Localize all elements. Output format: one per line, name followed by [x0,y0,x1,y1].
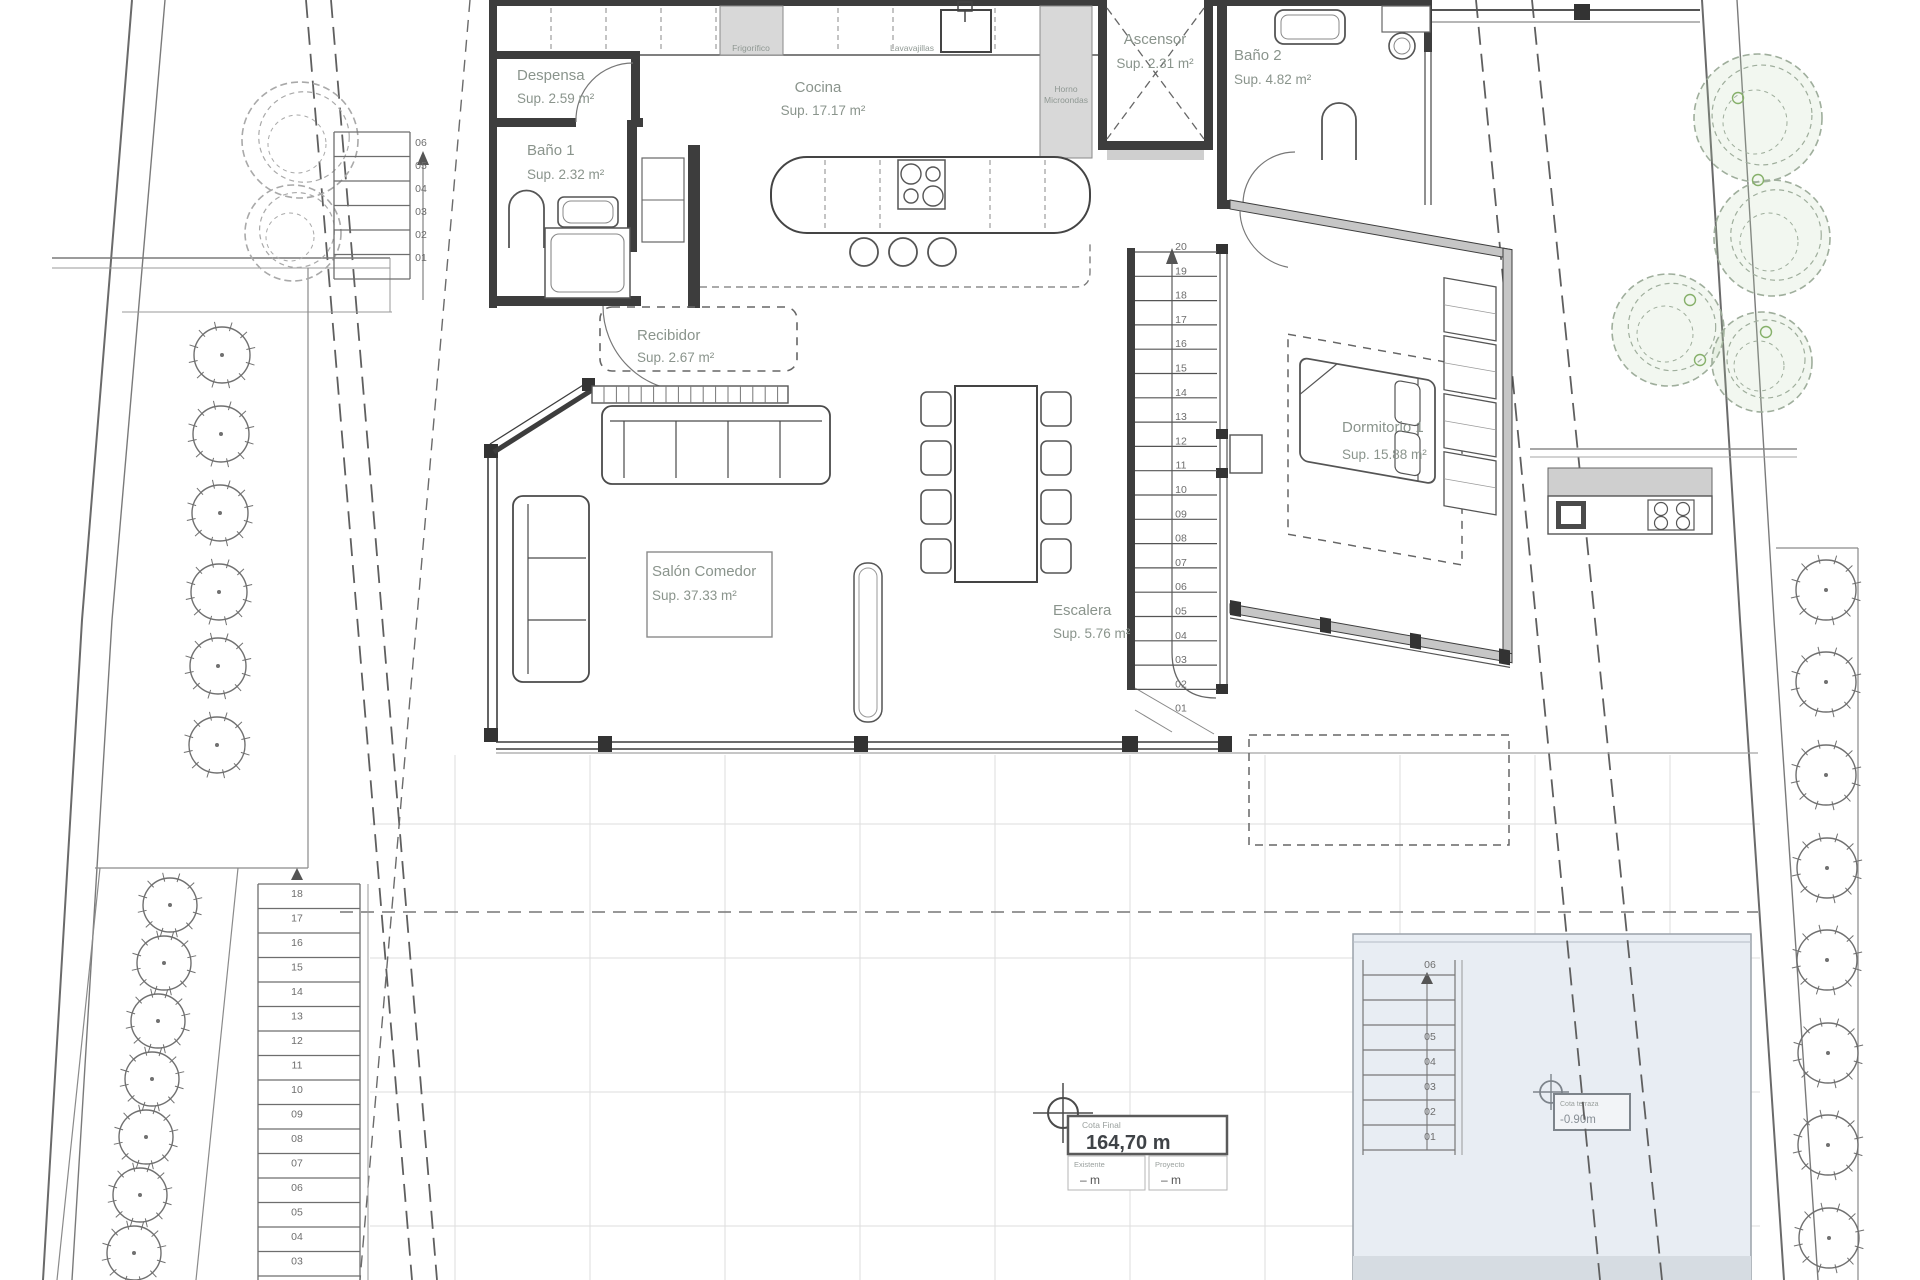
shrub [132,931,196,995]
shrub [138,873,202,937]
stair-number: 09 [1175,508,1187,520]
stair-number: 02 [1175,678,1187,690]
oven-column [1040,6,1092,158]
wall-column [1218,736,1232,752]
tree [1712,312,1812,412]
wall-column [1410,633,1421,650]
wall [1503,248,1512,663]
stair-number: 02 [415,229,427,241]
stair-number: 04 [1424,1056,1436,1068]
dining-table [955,386,1037,582]
stair-number: 01 [415,252,427,264]
stool [850,238,878,266]
stair-number: 10 [291,1084,303,1096]
label-cocina: Cocina [795,79,842,96]
stair-number: 17 [291,913,303,925]
wall [1098,0,1107,150]
chair [1041,490,1071,524]
planter-edge [196,868,238,1280]
main-stair: 2019181716151413121110090807060504030201 [1135,241,1262,734]
label-ascensor-area: Sup. 2.31 m² [1116,56,1194,71]
toilet [509,191,544,249]
tree [1714,180,1830,296]
outdoor-kitchen [1548,468,1712,534]
stair-number: 17 [1175,314,1187,326]
stair-number: 18 [291,888,303,900]
label-recibidor: Recibidor [637,327,700,344]
sofa [602,406,830,484]
stair-number: 14 [291,986,303,998]
wall [1548,468,1712,496]
shrub [114,1105,178,1169]
pool-far-edge [1353,1256,1751,1280]
wall [1230,604,1512,663]
bathroom-sink [1389,33,1415,59]
label-escalera: Escalera [1053,602,1112,619]
hob [898,160,945,209]
stair-number: 16 [1175,338,1187,350]
pool [1353,934,1751,1280]
stair-number: 07 [291,1158,303,1170]
wall [688,145,700,308]
door-swing-arc [1240,211,1288,267]
stair-number: 06 [1175,581,1187,593]
shrub [1791,647,1861,717]
stair-number: 05 [1424,1031,1436,1043]
stair-number: 02 [1424,1106,1436,1118]
wall [631,51,640,127]
level-main-title: Cota Final [1082,1120,1121,1130]
level-left-label: Existente [1074,1160,1105,1169]
stair-number: 05 [1175,606,1187,618]
label-bano2-area: Sup. 4.82 m² [1234,72,1312,87]
window-glazing [1230,618,1510,667]
label-ascensor: Ascensor [1124,31,1187,48]
shrub [108,1163,172,1227]
stool [928,238,956,266]
vanity [1382,6,1430,32]
stair-number: 04 [291,1231,303,1243]
kitchen-sink [941,10,991,52]
setback-line [306,0,412,1280]
stair-number: 16 [291,937,303,949]
wall [1213,0,1432,6]
shrub [1792,925,1862,995]
stair-number: 01 [1175,703,1187,715]
stair-number: 05 [415,160,427,172]
wall [489,118,576,127]
stair-number: 04 [415,183,427,195]
stair-number: 19 [1175,265,1187,277]
chair [921,539,951,573]
wall [489,0,1100,6]
stair-number: 09 [291,1109,303,1121]
shrub [186,559,252,625]
pool-area: 060504030201 Cota terraza -0.90m [1353,934,1751,1280]
shrub [189,322,255,388]
elevator-cross [1107,8,1204,139]
label-bano1-area: Sup. 2.32 m² [527,167,605,182]
wall [489,0,497,308]
tree [1694,54,1822,182]
stair-number: 13 [291,1011,303,1023]
wall [1204,0,1213,150]
stair-landing-box [1230,435,1262,473]
stair-number: 08 [1175,533,1187,545]
oven-label: Horno [1054,84,1077,94]
wall [1217,0,1227,208]
canopy-dashed-outline [1249,735,1509,845]
label-salon-area: Sup. 37.33 m² [652,588,737,603]
stair-number: 12 [291,1035,303,1047]
pool-level-title: Cota terraza [1560,1101,1599,1108]
tree [245,185,341,281]
sideboard [854,563,882,722]
label-salon: Salón Comedor [652,563,756,580]
wall-column [1574,4,1590,20]
shrub [187,480,253,546]
shrub [188,401,254,467]
level-left-value: – m [1080,1173,1100,1187]
label-bano1: Baño 1 [527,142,575,159]
radiator [592,386,788,403]
shrub [1794,1203,1864,1273]
shrub [1791,740,1861,810]
toilet [1322,103,1356,160]
wardrobe [1444,278,1496,515]
fridge-label: Frigorífico [732,43,770,53]
stair-number: 03 [415,206,427,218]
stair-number: 06 [415,137,427,149]
boundary-left-inner [72,0,165,1280]
stair-number: 10 [1175,484,1187,496]
wall [1098,141,1213,150]
stair-number: 15 [291,962,303,974]
label-bano2: Baño 2 [1234,47,1282,64]
stool [889,238,917,266]
wall-column [484,728,498,742]
chair [1041,392,1071,426]
label-dormitorio1-area: Sup. 15.88 m² [1342,447,1427,462]
stair-number: 03 [1175,654,1187,666]
shower [545,228,630,298]
stair-number: 11 [1176,460,1187,472]
stair-number: 03 [291,1256,303,1268]
shrub [1793,1110,1863,1180]
shrub [185,633,251,699]
wall-column [1122,736,1138,752]
chair [921,441,951,475]
wall-column [1320,617,1331,634]
floor-plan-drawing: 060504030201 Cota terraza -0.90m [0,0,1920,1280]
stair-number: 06 [291,1182,303,1194]
shrub [126,989,190,1053]
stair-number: 08 [291,1133,303,1145]
stair-break-line [1135,710,1172,732]
pool-level-value: -0.90m [1560,1114,1596,1126]
level-right-value: – m [1161,1173,1181,1187]
stair-number: 11 [292,1060,303,1072]
stair-number: 14 [1175,387,1187,399]
shrub [102,1221,166,1280]
chair [1041,441,1071,475]
stair-number: 20 [1175,241,1187,253]
label-escalera-area: Sup. 5.76 m² [1053,626,1131,641]
microwave-label: Microondas [1044,95,1088,105]
chair [1041,539,1071,573]
shrub [184,712,250,778]
chair [921,392,951,426]
label-cocina-area: Sup. 17.17 m² [781,103,866,118]
level-right-label: Proyecto [1155,1160,1185,1169]
chair [921,490,951,524]
outdoor-sink-bowl [1561,506,1581,524]
door-swing-arc [1243,152,1295,204]
stair-number: 04 [1175,630,1187,642]
bay-window-wall [494,390,592,452]
label-recibidor-area: Sup. 2.67 m² [637,350,715,365]
label-despensa-area: Sup. 2.59 m² [517,91,595,106]
sofa [513,496,589,682]
stair-number: 13 [1175,411,1187,423]
shrub [1792,833,1862,903]
stair-number: 15 [1175,363,1187,375]
exterior-left-stair: 18171615141312111009080706050403 [258,868,368,1280]
wall-column [854,736,868,752]
level-main-value: 164,70 m [1086,1132,1171,1154]
stair-number: 07 [1175,557,1187,569]
stair-number: 01 [1424,1131,1436,1143]
boundary-left-outer [43,0,132,1280]
wall-column [1230,600,1241,617]
door-swing-arc [603,306,688,391]
wall-column [598,736,612,752]
stair-number: 05 [291,1207,303,1219]
stair-number: 03 [1424,1081,1436,1093]
shrub [1791,555,1861,625]
bay-window-glazing [490,382,588,444]
label-dormitorio1: Dormitorio 1 [1342,419,1424,436]
wall [1230,200,1512,259]
elevator-door-sill [1107,150,1204,160]
tree [1612,274,1724,386]
wall [496,51,640,59]
wall [1127,248,1135,690]
stair-number: 12 [1175,435,1187,447]
stair-number: 18 [1175,290,1187,302]
floor-plan-page: 060504030201 Cota terraza -0.90m [0,0,1920,1280]
label-despensa: Despensa [517,67,585,84]
stair-number: 06 [1424,959,1436,971]
dishwasher-label: Lavavajillas [890,43,934,53]
shrub [120,1047,184,1111]
stair-up-arrow-icon [291,868,303,880]
wall-column [1499,648,1510,665]
